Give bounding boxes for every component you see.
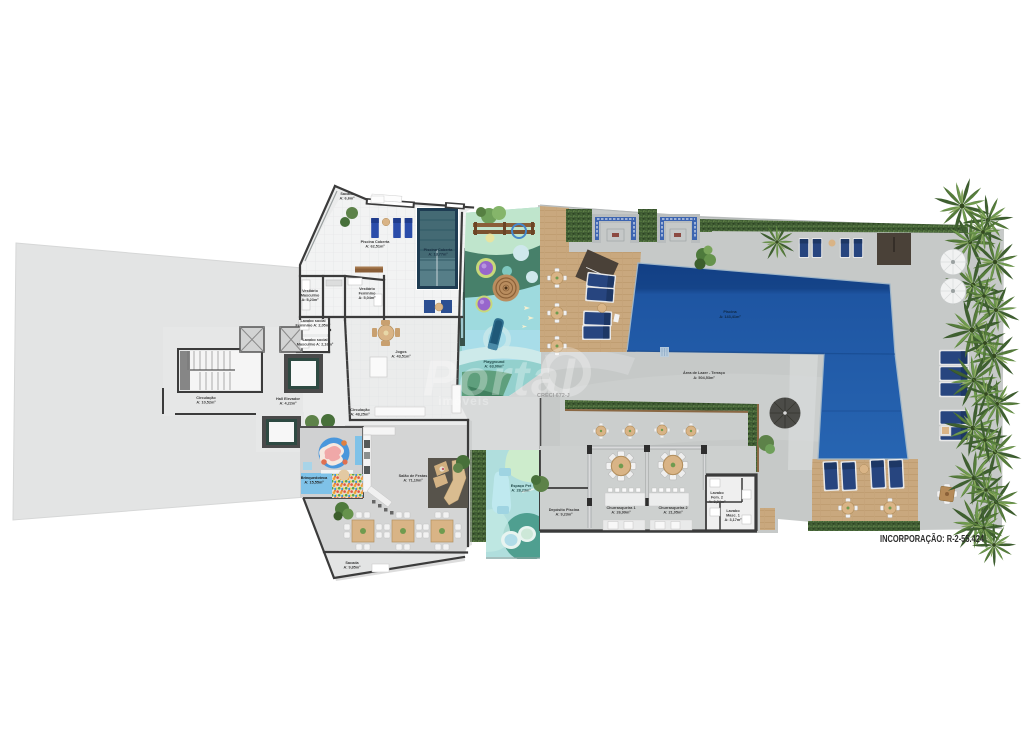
svg-text:Hall Elevador: Hall Elevador [276,397,301,401]
svg-text:Sacada: Sacada [340,192,354,196]
svg-text:imóveis: imóveis [438,394,490,408]
svg-text:Feminino A: 2,05m²: Feminino A: 2,05m² [296,324,332,328]
svg-text:Piscina Coberta: Piscina Coberta [424,248,454,252]
svg-text:Masculino A: 2,16m²: Masculino A: 2,16m² [297,343,334,347]
svg-text:A: 28,23m²: A: 28,23m² [511,489,531,493]
svg-text:Circulação: Circulação [350,408,370,412]
svg-text:A: 48,25m²: A: 48,25m² [350,413,370,417]
svg-text:Feminino: Feminino [359,292,377,296]
svg-text:Piscina Coberta: Piscina Coberta [361,240,391,244]
svg-text:Piscina: Piscina [723,310,737,314]
svg-text:A: 4,22m²: A: 4,22m² [279,402,297,406]
svg-text:Lavabo social: Lavabo social [300,319,325,323]
svg-text:A: 3,17m²: A: 3,17m² [724,518,742,522]
svg-text:A: 13,77m²: A: 13,77m² [428,253,448,257]
svg-text:A: 71,10m²: A: 71,10m² [403,479,423,483]
svg-text:Fem. 2: Fem. 2 [711,496,723,500]
svg-text:A: 9,85m²: A: 9,85m² [343,566,361,570]
svg-text:Vestiário: Vestiário [302,289,319,293]
svg-text:A: 3,34m²: A: 3,34m² [708,500,726,504]
svg-text:A: 143,41m²: A: 143,41m² [719,315,741,319]
svg-text:Masculino: Masculino [301,294,320,298]
svg-text:Masc. 1: Masc. 1 [726,514,740,518]
svg-text:Brinquedoteca: Brinquedoteca [301,476,328,480]
svg-text:Salão de Festas: Salão de Festas [399,474,428,478]
svg-text:A: 9,23m²: A: 9,23m² [555,513,573,517]
svg-text:A: 504,53m²: A: 504,53m² [693,376,715,380]
svg-text:A: 15,55m²: A: 15,55m² [304,481,324,485]
svg-text:A: 62,51m²: A: 62,51m² [365,245,385,249]
svg-text:A: 63,00m²: A: 63,00m² [484,365,504,369]
svg-text:Sacada: Sacada [345,561,359,565]
svg-text:Churrasqueira 1: Churrasqueira 1 [606,506,635,510]
svg-text:A: 21,05m²: A: 21,05m² [663,511,683,515]
svg-text:A: 43,51m²: A: 43,51m² [391,355,411,359]
svg-text:A: 5,23m²: A: 5,23m² [301,298,319,302]
svg-text:Depósito Piscina: Depósito Piscina [549,508,580,512]
svg-text:Lavabo: Lavabo [726,509,740,513]
svg-text:A: 10,52m²: A: 10,52m² [196,401,216,405]
svg-text:Churrasqueira 2: Churrasqueira 2 [658,506,687,510]
svg-text:Circulação: Circulação [196,396,216,400]
svg-text:Área de Lazer - Terraço: Área de Lazer - Terraço [683,370,726,375]
svg-text:A: 5,04m²: A: 5,04m² [358,296,376,300]
svg-text:Jogos: Jogos [395,350,406,354]
svg-text:A: 6,6m²: A: 6,6m² [340,197,356,201]
svg-text:Espaço Pet: Espaço Pet [511,484,532,488]
svg-text:Lavabo social: Lavabo social [302,338,327,342]
svg-text:INCORPORAÇÃO: R-2-55.424: INCORPORAÇÃO: R-2-55.424 [880,532,984,545]
svg-text:CRECI 672-J: CRECI 672-J [537,393,570,399]
svg-text:A: 26,99m²: A: 26,99m² [611,511,631,515]
svg-text:Vestiário: Vestiário [359,287,376,291]
svg-text:Lavabo: Lavabo [710,491,724,495]
svg-text:Playground: Playground [484,360,506,364]
